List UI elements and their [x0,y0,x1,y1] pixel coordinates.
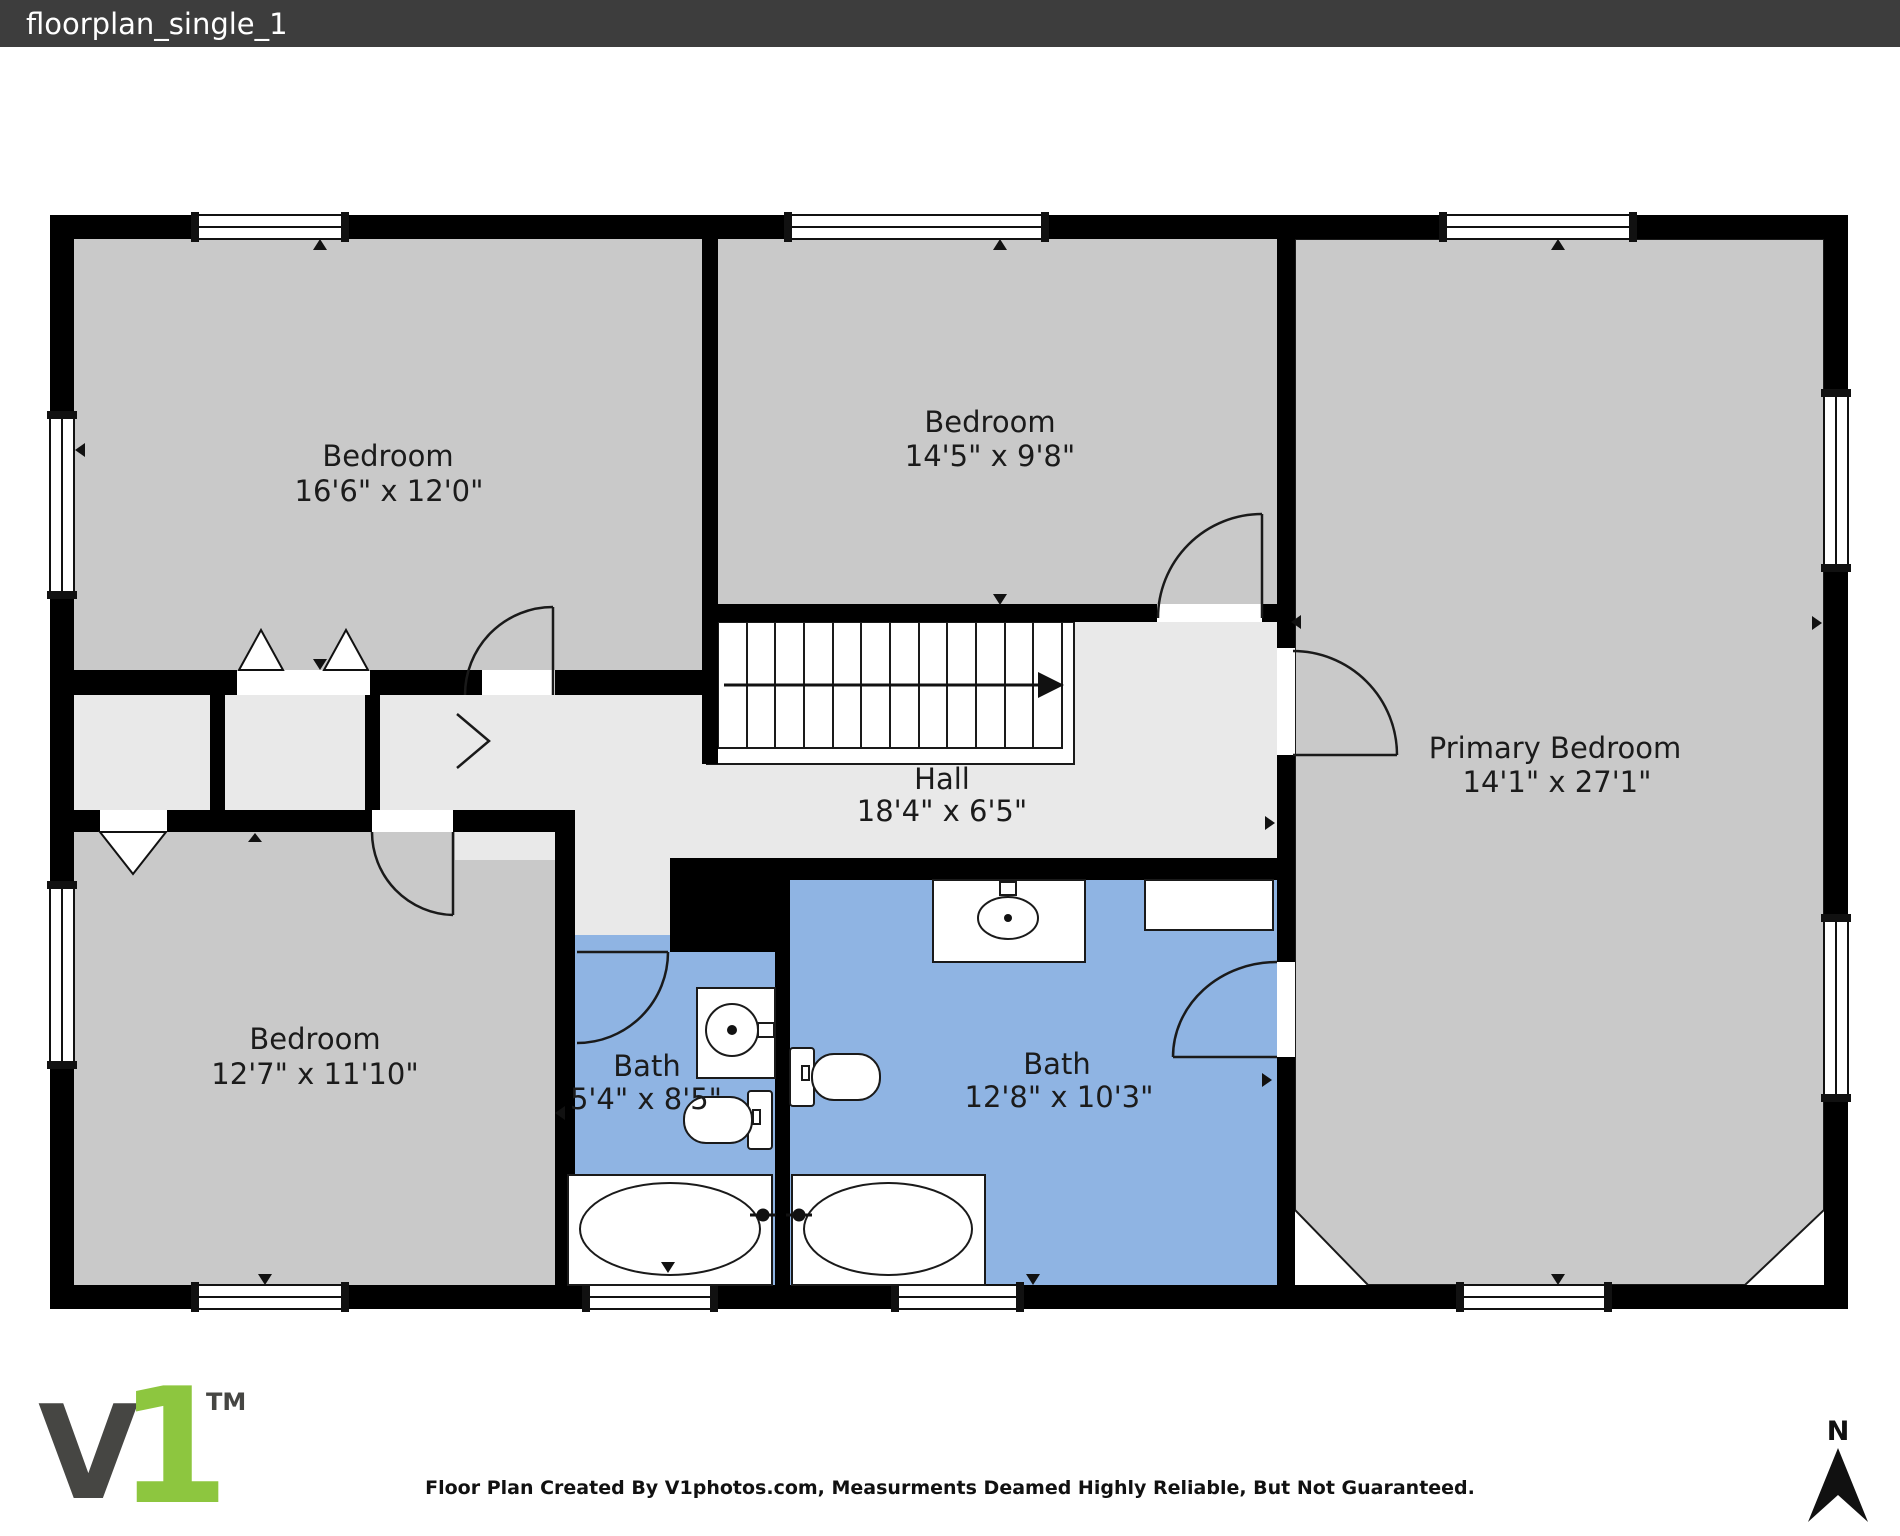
room-name: Bath [1023,1047,1090,1081]
v1-logo: V 1 TM [38,1353,246,1536]
room-dims: 16'6" x 12'0" [295,474,484,508]
floorplan-canvas: Bedroom 16'6" x 12'0" Bedroom 14'5" x 9'… [0,0,1900,1536]
title-bar: floorplan_single_1 [0,0,1900,47]
window [48,882,76,1068]
room-name: Bedroom [249,1022,380,1056]
window [1822,915,1850,1101]
window [1440,213,1636,241]
counter [1145,880,1273,930]
bathtub-icon [792,1175,985,1285]
room-name: Bath [613,1049,680,1083]
screenshot-page: floorplan_single_1 [0,0,1900,1536]
room-dims: 14'5" x 9'8" [905,439,1075,473]
north-arrow: N [1808,1416,1868,1522]
window [48,412,76,598]
window [583,1283,717,1311]
window [192,1283,348,1311]
window [1822,390,1850,571]
room-dims: 12'8" x 10'3" [965,1080,1154,1114]
window [892,1283,1023,1311]
compass-label: N [1827,1416,1850,1447]
disclaimer-text: Floor Plan Created By V1photos.com, Meas… [425,1477,1475,1499]
staircase [707,622,1074,764]
window [1457,1283,1611,1311]
window-title: floorplan_single_1 [26,7,288,41]
closet-right [380,695,455,810]
room-name: Hall [914,762,970,796]
room-dims: 5'4" x 8'5" [570,1082,722,1116]
sink-icon [697,988,775,1078]
room-dims: 14'1" x 27'1" [1463,765,1652,799]
logo-tm: TM [206,1388,246,1416]
closet-middle [225,695,365,810]
room-dims: 12'7" x 11'10" [211,1057,418,1091]
room-name: Bedroom [322,439,453,473]
toilet-icon [790,1048,880,1106]
room-hall-upper [1074,622,1277,684]
room-name: Bedroom [924,405,1055,439]
room-name: Primary Bedroom [1429,731,1681,765]
logo-one: 1 [118,1353,229,1536]
closet-left [74,695,210,810]
window [192,213,348,241]
window [785,213,1048,241]
room-dims: 18'4" x 6'5" [857,794,1027,828]
north-arrow-icon [1808,1448,1868,1522]
sink-icon [933,880,1085,962]
room-hall-nook [575,858,670,935]
